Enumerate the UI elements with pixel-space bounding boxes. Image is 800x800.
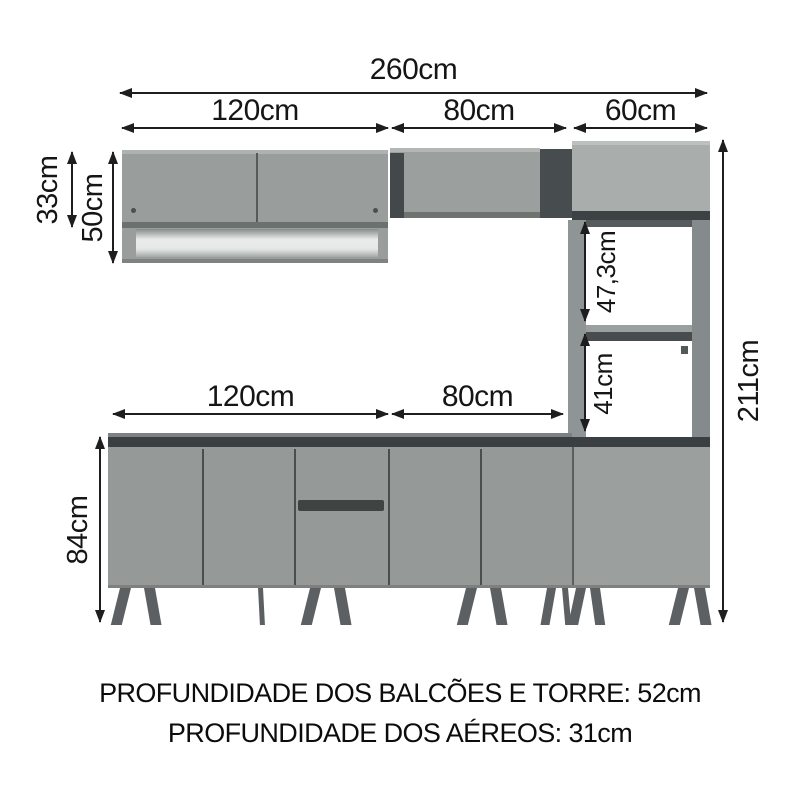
cabinet-leg — [669, 588, 689, 625]
label-balcao-80: 80cm — [392, 380, 563, 414]
note-depth-wall: PROFUNDIDADE DOS AÉREOS: 31cm — [0, 718, 800, 749]
wall-cabinet-120-top-edge — [122, 150, 388, 154]
kitchen-dimensions-diagram: 260cm 120cm 80cm 60cm 120cm 80cm 33cm 50… — [0, 0, 800, 800]
label-tower-niche-1: 47,3cm — [591, 212, 621, 332]
wall-cabinet-80 — [390, 148, 540, 218]
tower-shelf-support — [681, 346, 688, 354]
tower-base-door — [572, 447, 710, 588]
cabinet-leg — [694, 588, 712, 625]
cabinet-leg — [144, 588, 162, 625]
tower-top-cabinet — [572, 141, 710, 220]
label-balcao-height: 84cm — [63, 470, 93, 590]
base-door-divider-3 — [388, 449, 390, 586]
cabinet-leg — [457, 588, 477, 625]
label-tower-niche-2: 41cm — [588, 324, 618, 444]
label-total-height: 211cm — [734, 321, 764, 441]
cabinet-leg — [568, 588, 586, 625]
wall-cabinet-80-bottom-band — [404, 212, 540, 218]
label-total-width: 260cm — [120, 53, 707, 87]
tower-top-cabinet-top-edge — [572, 141, 710, 145]
dim-line-tower-niche-2 — [584, 334, 586, 431]
cabinet-leg — [490, 588, 508, 625]
wall-80-tower-gap-shadow — [540, 149, 572, 218]
base-door-divider-4 — [480, 449, 482, 586]
dim-line-tower-niche-1 — [584, 222, 586, 321]
base-door-divider-1 — [202, 449, 204, 586]
countertop — [108, 437, 710, 447]
dim-line-aereo-total-height — [112, 152, 114, 263]
dim-line-total-height — [722, 140, 724, 622]
wall-cabinet-120-open-niche — [136, 229, 378, 257]
cabinet-leg — [540, 588, 556, 625]
wall-cabinet-120-handle-left — [131, 208, 136, 213]
cabinet-leg — [334, 588, 352, 625]
note-depth-base-tower: PROFUNDIDADE DOS BALCÕES E TORRE: 52cm — [0, 678, 800, 709]
label-aereo-60: 60cm — [574, 94, 707, 128]
wall-cabinet-120-door-divider — [256, 153, 258, 222]
dim-line-aereo-door-height — [71, 152, 73, 227]
dim-line-balcao-height — [99, 437, 101, 622]
wall-cabinet-80-top-edge — [390, 148, 540, 152]
base-cabinet — [108, 447, 572, 588]
label-aereo-120: 120cm — [122, 94, 388, 128]
wall-cabinet-120-bottom-edge — [122, 259, 388, 263]
cabinet-leg — [258, 588, 265, 625]
label-aereo-total-height: 50cm — [78, 148, 108, 268]
label-aereo-80: 80cm — [392, 94, 566, 128]
cabinet-leg — [590, 588, 605, 625]
label-balcao-120: 120cm — [113, 380, 388, 414]
wall-cabinet-80-left-shadow — [390, 153, 404, 218]
tower-right-panel — [692, 220, 710, 438]
wall-cabinet-120-underdoor-band — [122, 222, 388, 228]
cabinet-leg — [111, 588, 131, 625]
tower-base-left-edge — [572, 447, 574, 588]
wall-cabinet-120-handle-right — [373, 208, 378, 213]
cabinet-leg — [301, 588, 321, 625]
label-aereo-door-height: 33cm — [33, 130, 63, 250]
drawer-handle — [298, 500, 384, 511]
base-door-divider-2 — [294, 449, 296, 586]
